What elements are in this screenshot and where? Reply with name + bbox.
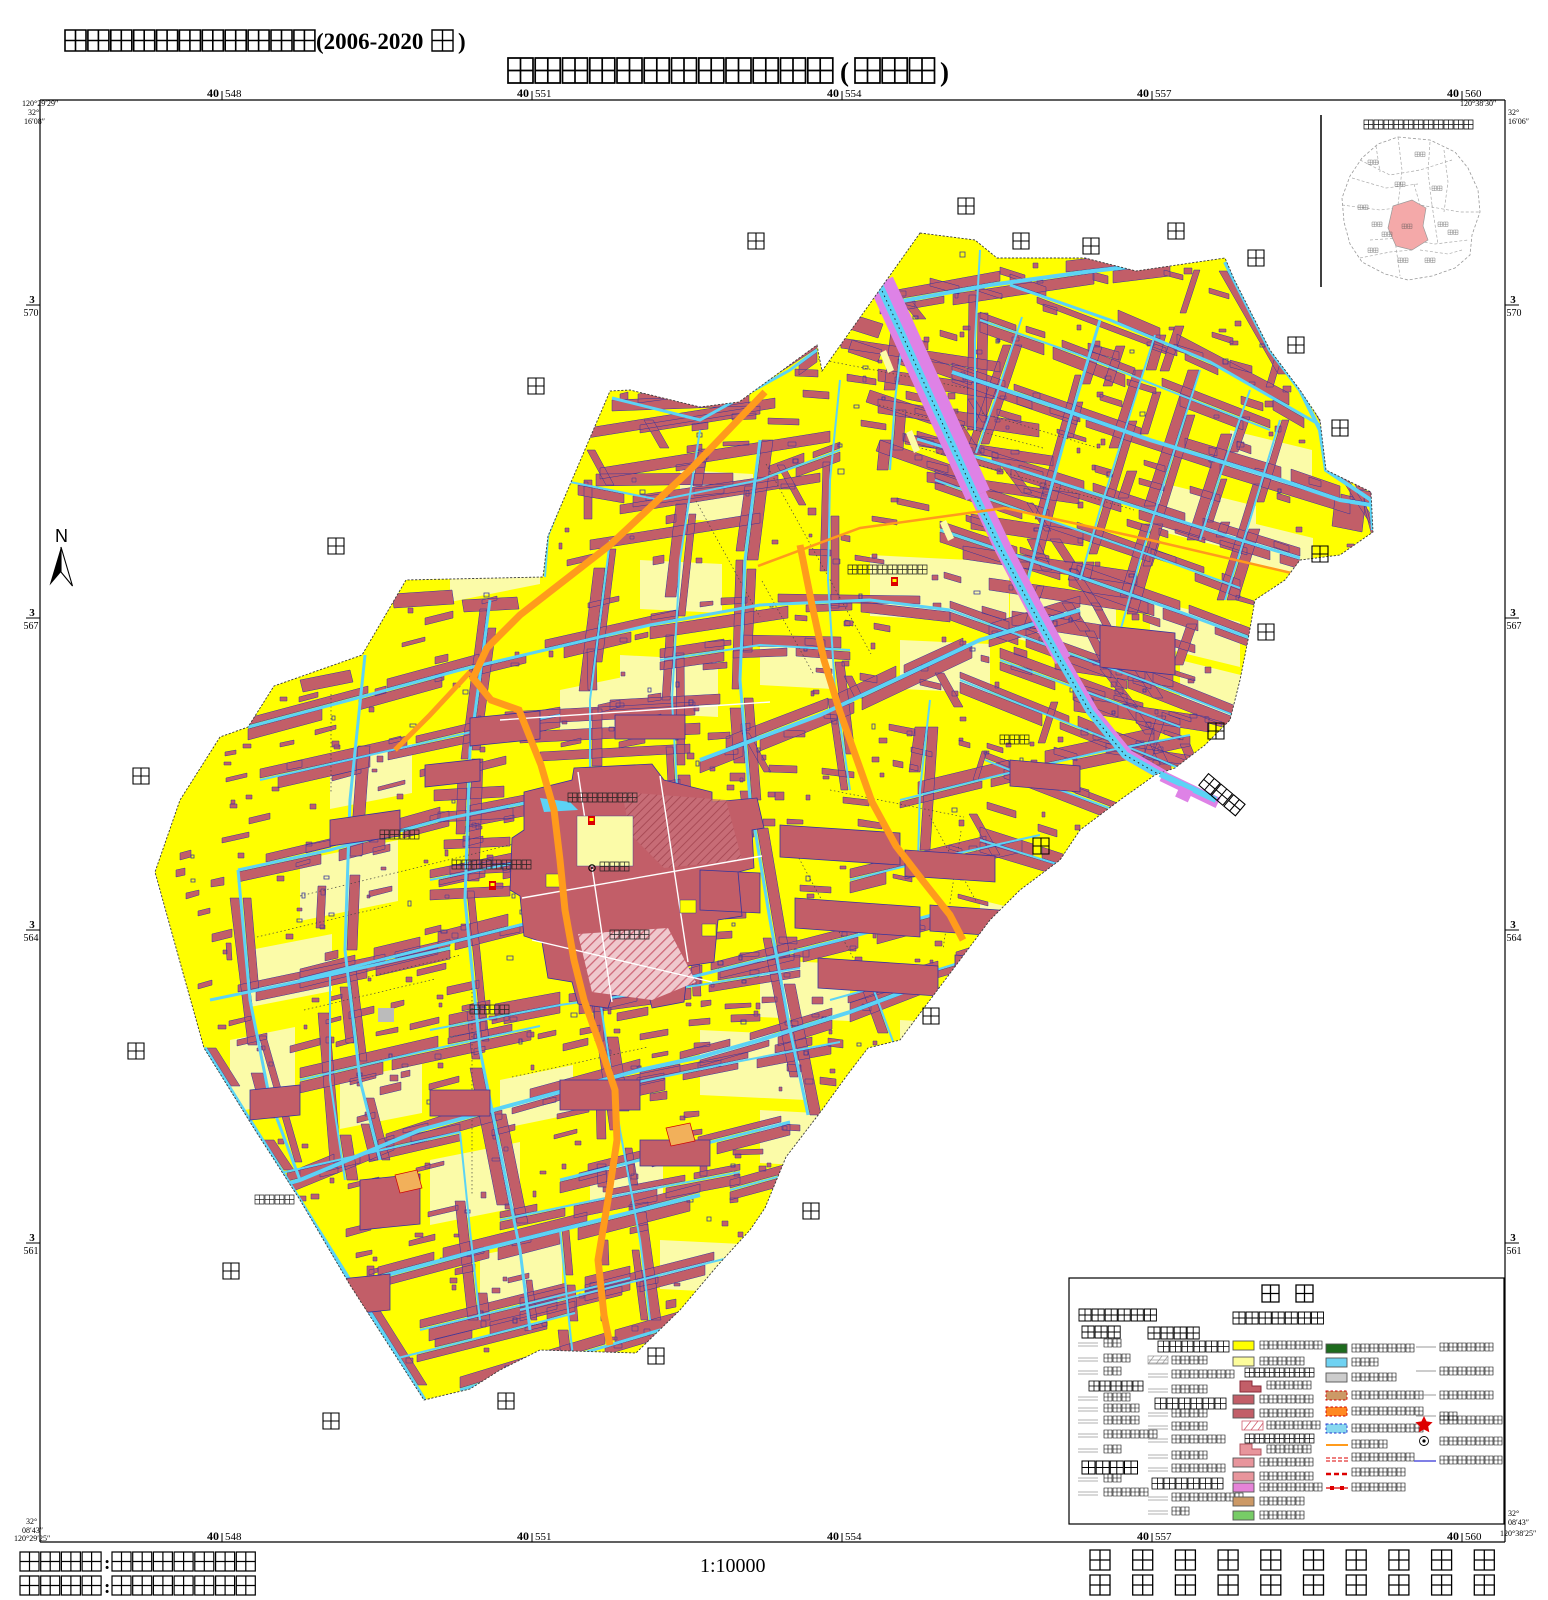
svg-text::: :: [104, 1577, 110, 1598]
svg-text:40: 40: [1447, 1529, 1459, 1543]
svg-text:3: 3: [1510, 294, 1516, 306]
svg-text:32°: 32°: [1508, 108, 1519, 117]
svg-text:32°: 32°: [26, 1517, 37, 1526]
svg-text:561: 561: [1507, 1246, 1522, 1257]
svg-text:560: 560: [1465, 1531, 1482, 1543]
svg-text:567: 567: [1507, 621, 1522, 632]
svg-text:567: 567: [24, 621, 39, 632]
svg-text:32°: 32°: [28, 108, 39, 117]
svg-text:32°: 32°: [1508, 1509, 1519, 1518]
svg-text:40: 40: [1137, 1529, 1149, 1543]
svg-text:1:10000: 1:10000: [700, 1555, 766, 1577]
svg-text:554: 554: [845, 1531, 862, 1543]
svg-text:08′43″: 08′43″: [1508, 1518, 1529, 1527]
svg-text:564: 564: [24, 933, 39, 944]
svg-text:40: 40: [207, 1529, 219, 1543]
svg-text:N: N: [55, 526, 68, 546]
svg-text:(2006-2020: (2006-2020: [316, 29, 423, 54]
svg-text:40: 40: [827, 86, 839, 100]
svg-text:557: 557: [1155, 88, 1172, 100]
svg-text::: :: [104, 1553, 110, 1574]
svg-text:(: (: [840, 57, 849, 87]
svg-text:16′06″: 16′06″: [1508, 117, 1529, 126]
svg-text:40: 40: [1137, 86, 1149, 100]
svg-text:3: 3: [1510, 1232, 1516, 1244]
svg-text:551: 551: [535, 88, 552, 100]
svg-text:40: 40: [517, 1529, 529, 1543]
svg-text:551: 551: [535, 1531, 552, 1543]
svg-text:120°29′29″: 120°29′29″: [22, 99, 58, 108]
svg-text:570: 570: [1507, 308, 1522, 319]
svg-text:40: 40: [517, 86, 529, 100]
svg-text:548: 548: [225, 88, 242, 100]
svg-text:16′08″: 16′08″: [24, 117, 45, 126]
svg-text:120°29′25″: 120°29′25″: [14, 1534, 50, 1543]
svg-text:3: 3: [29, 1232, 35, 1244]
svg-text:3: 3: [1510, 607, 1516, 619]
svg-text:557: 557: [1155, 1531, 1172, 1543]
svg-text:561: 561: [24, 1246, 39, 1257]
svg-text:120°38′25″: 120°38′25″: [1500, 1529, 1536, 1538]
svg-text:554: 554: [845, 88, 862, 100]
svg-text:3: 3: [29, 919, 35, 931]
svg-text:40: 40: [827, 1529, 839, 1543]
svg-text:3: 3: [29, 294, 35, 306]
svg-text:3: 3: [29, 607, 35, 619]
svg-text:3: 3: [1510, 919, 1516, 931]
svg-text:548: 548: [225, 1531, 242, 1543]
svg-text:570: 570: [24, 308, 39, 319]
svg-text:120°38′30″: 120°38′30″: [1460, 99, 1496, 108]
svg-text:): ): [458, 29, 466, 54]
svg-text:): ): [940, 57, 949, 87]
svg-text:40: 40: [207, 86, 219, 100]
svg-text:40: 40: [1447, 86, 1459, 100]
svg-text:564: 564: [1507, 933, 1522, 944]
